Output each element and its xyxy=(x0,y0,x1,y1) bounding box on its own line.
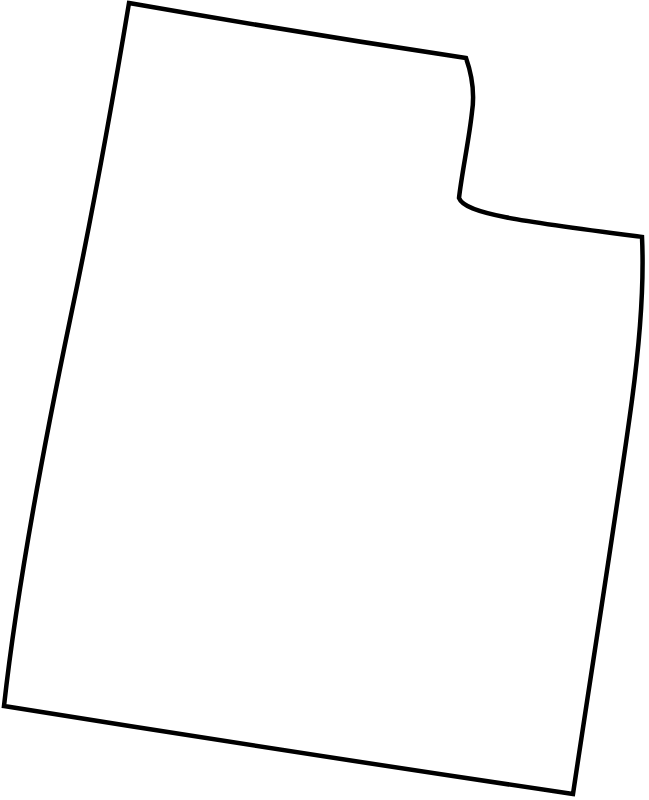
map-page xyxy=(0,0,649,800)
utah-outline-map xyxy=(0,0,649,800)
utah-state-border xyxy=(4,3,643,794)
